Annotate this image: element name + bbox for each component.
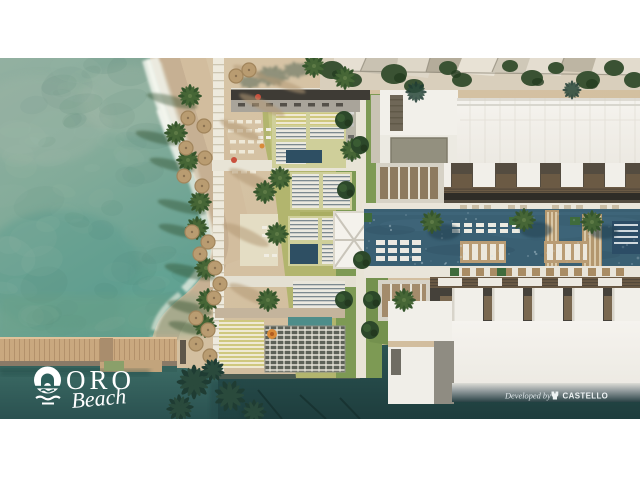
- svg-text:Developed by: Developed by: [504, 392, 551, 401]
- svg-text:Beach: Beach: [70, 383, 127, 413]
- svg-text:CASTELLO: CASTELLO: [563, 392, 609, 401]
